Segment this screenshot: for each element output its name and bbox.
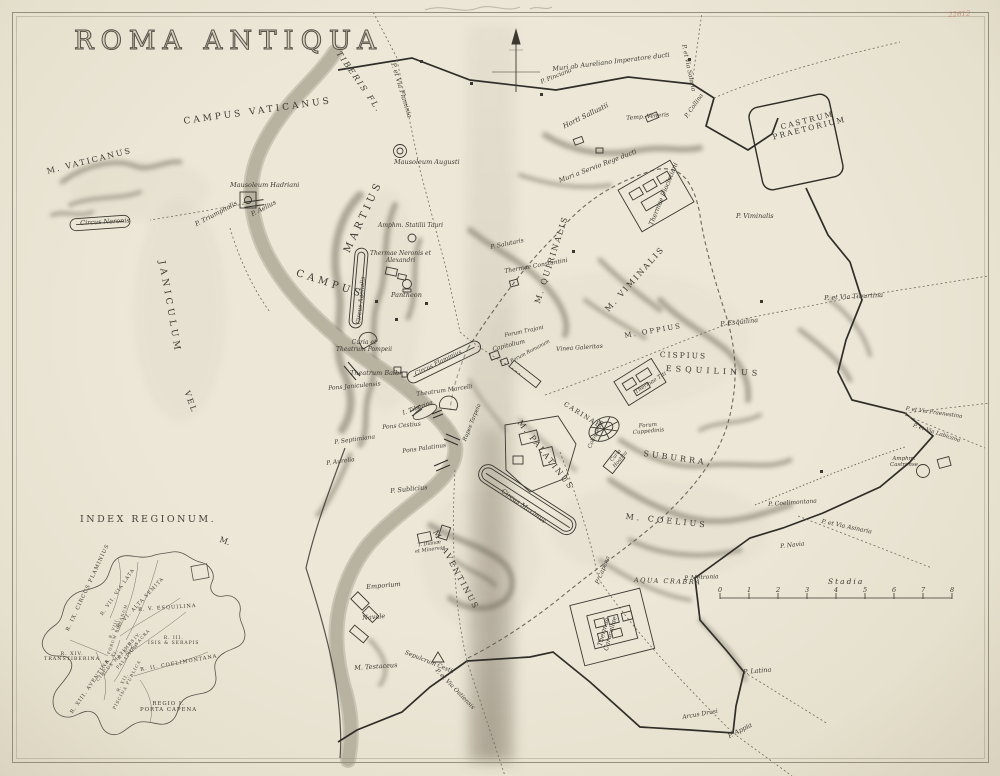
map-label: Amphm. Castrense	[890, 456, 918, 468]
scale-tick-label: 4	[834, 586, 838, 594]
inset-region-label: Regio I. Porta Capena	[140, 701, 197, 713]
inset-region-label: R. XIV. Transtiberina	[44, 652, 100, 663]
castrum-praetorium-outline	[747, 92, 845, 191]
map-label: Pantheon	[391, 292, 422, 299]
scale-tick-label: 8	[950, 586, 954, 594]
scale-tick-label: 2	[776, 586, 780, 594]
scale-label: Stadia	[828, 577, 864, 586]
inset-title: Index Regionum.	[80, 514, 216, 525]
map-label: Mausoleum Augusti	[394, 159, 460, 166]
map-label: Theatrum Balbi	[350, 370, 401, 377]
map-label: P. Viminalis	[736, 213, 774, 220]
inset-region-label: R. III. Isis & Serapis	[148, 636, 199, 646]
map-label: Thermae Neronis et Alexandri	[370, 251, 431, 264]
scale-tick-label: 1	[747, 586, 751, 594]
scale-tick-label: 6	[892, 586, 896, 594]
catalog-mark: 22612	[948, 10, 971, 19]
map-label: Cispius	[660, 351, 708, 361]
map-sheet: Roma Antiqua 22612 Stadia Index Regionum…	[0, 0, 1000, 776]
scale-tick-label: 5	[863, 586, 867, 594]
scale-tick-label: 0	[718, 586, 722, 594]
map-label: Mausoleum Hadriani	[230, 182, 299, 189]
map-canvas	[0, 0, 1000, 776]
map-label: Amphm. Statilii Tauri	[378, 223, 443, 230]
pencil-scribble	[425, 7, 552, 11]
map-label: Curia et Theatrum Pompeii	[336, 340, 392, 353]
scale-tick-label: 3	[805, 586, 809, 594]
scale-tick-label: 7	[921, 586, 925, 594]
